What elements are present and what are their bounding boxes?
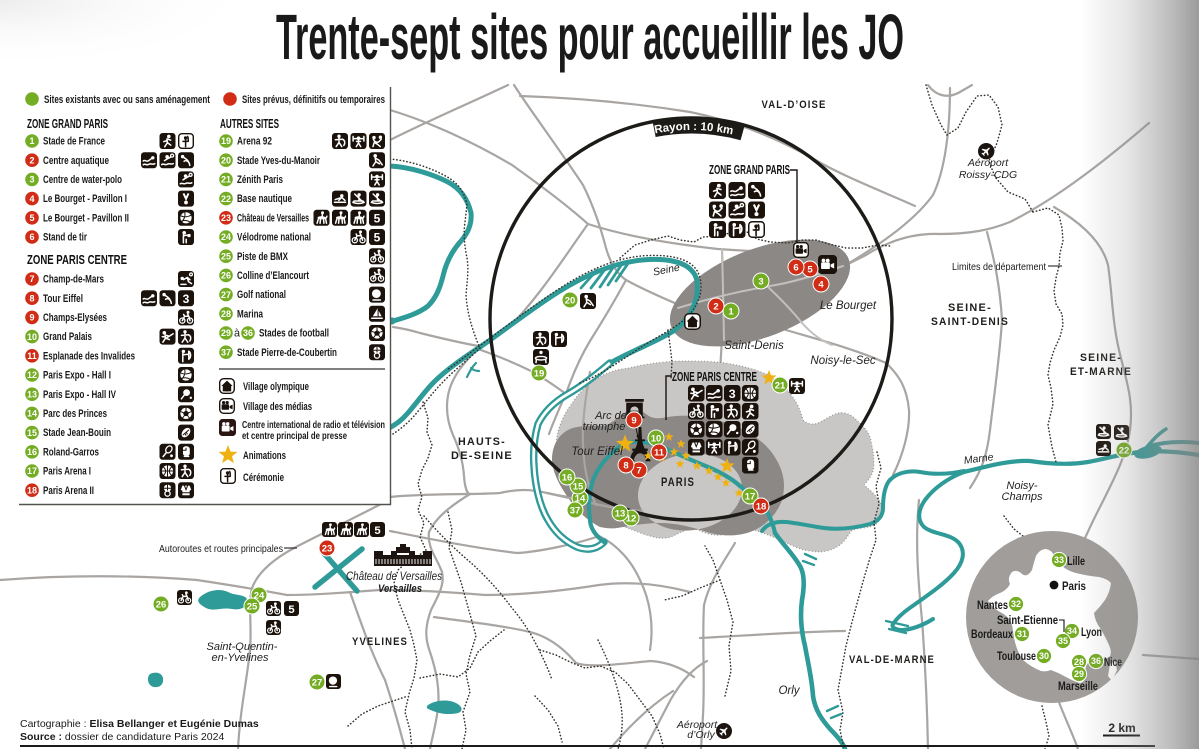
svg-text:9: 9 — [631, 415, 636, 426]
svg-text:Grand Palais: Grand Palais — [43, 331, 92, 343]
svg-text:Centre de water-polo: Centre de water-polo — [43, 174, 122, 186]
svg-text:Autoroutes et routes principal: Autoroutes et routes principales — [159, 543, 283, 555]
svg-text:Marina: Marina — [237, 308, 264, 320]
svg-text:Aéroport: Aéroport — [967, 157, 1009, 169]
svg-text:Stand de tir: Stand de tir — [43, 232, 88, 244]
svg-text:23: 23 — [221, 213, 231, 223]
svg-text:Stade Yves-du-Manoir: Stade Yves-du-Manoir — [237, 155, 321, 167]
svg-text:32: 32 — [1011, 599, 1021, 609]
svg-text:20: 20 — [565, 295, 576, 306]
svg-text:Village des médias: Village des médias — [243, 401, 312, 413]
svg-text:ZONE PARIS CENTRE: ZONE PARIS CENTRE — [27, 253, 127, 267]
svg-text:26: 26 — [221, 271, 231, 281]
svg-text:28: 28 — [221, 309, 231, 319]
svg-text:14: 14 — [27, 409, 37, 419]
svg-text:12: 12 — [27, 370, 37, 380]
svg-text:Roland-Garros: Roland-Garros — [43, 446, 99, 458]
svg-text:Centre international de radio: Centre international de radio et télévis… — [242, 420, 385, 431]
svg-text:22: 22 — [221, 194, 231, 204]
svg-text:36: 36 — [243, 328, 253, 338]
svg-text:17: 17 — [27, 466, 37, 476]
svg-text:2: 2 — [29, 155, 34, 165]
svg-text:DE-SEINE: DE-SEINE — [451, 450, 513, 462]
svg-text:10: 10 — [651, 433, 662, 444]
svg-text:5: 5 — [288, 604, 294, 616]
svg-text:Cérémonie: Cérémonie — [243, 472, 284, 484]
svg-text:30: 30 — [1039, 651, 1049, 661]
svg-text:4: 4 — [818, 279, 824, 290]
svg-text:35: 35 — [1058, 636, 1068, 646]
svg-text:Versailles: Versailles — [378, 583, 422, 595]
svg-text:27: 27 — [221, 290, 231, 300]
svg-text:Paris Arena I: Paris Arena I — [43, 466, 91, 478]
svg-text:HAUTS-: HAUTS- — [458, 436, 506, 448]
svg-text:23: 23 — [322, 543, 333, 554]
svg-text:33: 33 — [1054, 555, 1064, 565]
svg-text:5: 5 — [374, 525, 380, 537]
svg-text:Le Bourget: Le Bourget — [820, 300, 877, 312]
svg-text:triomphe: triomphe — [583, 421, 626, 433]
svg-text:1: 1 — [728, 306, 734, 317]
svg-text:10: 10 — [27, 332, 37, 342]
svg-text:YVELINES: YVELINES — [352, 636, 408, 648]
svg-text:Paris Arena II: Paris Arena II — [43, 485, 94, 497]
svg-text:Esplanade des Invalides: Esplanade des Invalides — [43, 350, 135, 362]
svg-text:Stade Pierre-de-Coubertin: Stade Pierre-de-Coubertin — [237, 347, 337, 359]
svg-text:37: 37 — [570, 505, 581, 516]
svg-text:29: 29 — [221, 328, 231, 338]
svg-text:Zénith Paris: Zénith Paris — [237, 174, 283, 186]
svg-text:15: 15 — [573, 481, 584, 492]
svg-text:SEINE-: SEINE- — [948, 302, 992, 314]
svg-text:Nantes: Nantes — [977, 600, 1008, 612]
svg-text:Paris Expo - Hall I: Paris Expo - Hall I — [43, 370, 111, 382]
svg-text:5: 5 — [374, 211, 381, 225]
svg-text:16: 16 — [27, 447, 37, 457]
svg-text:15: 15 — [27, 428, 37, 438]
svg-text:25: 25 — [247, 601, 258, 612]
svg-text:Bordeaux: Bordeaux — [971, 629, 1013, 641]
svg-text:Stade Jean-Bouin: Stade Jean-Bouin — [43, 427, 111, 439]
svg-text:6: 6 — [793, 262, 798, 273]
svg-text:Piste de BMX: Piste de BMX — [237, 251, 289, 263]
svg-text:Saint-Denis: Saint-Denis — [724, 340, 784, 352]
svg-text:Animations: Animations — [243, 450, 286, 462]
svg-text:19: 19 — [221, 136, 231, 146]
svg-text:Stade de France: Stade de France — [43, 136, 105, 148]
svg-text:8: 8 — [29, 293, 34, 303]
svg-text:4: 4 — [29, 194, 34, 204]
svg-text:13: 13 — [615, 508, 626, 519]
svg-text:37: 37 — [221, 347, 231, 357]
svg-text:20: 20 — [221, 155, 231, 165]
svg-text:27: 27 — [312, 677, 323, 688]
svg-text:d’Orly: d’Orly — [687, 729, 715, 741]
svg-text:Source : dossier de candidatur: Source : dossier de candidature Paris 20… — [20, 731, 224, 743]
svg-text:Champ-de-Mars: Champ-de-Mars — [43, 274, 104, 286]
svg-text:Château de Versailles: Château de Versailles — [346, 571, 442, 583]
svg-text:3: 3 — [758, 276, 763, 287]
svg-text:3: 3 — [183, 292, 190, 306]
svg-text:6: 6 — [29, 232, 34, 242]
svg-text:SAINT-DENIS: SAINT-DENIS — [931, 316, 1009, 328]
svg-text:31: 31 — [1017, 629, 1027, 639]
svg-text:Tour Eiffel: Tour Eiffel — [571, 446, 623, 458]
svg-text:7: 7 — [29, 274, 34, 284]
svg-text:Tour Eiffel: Tour Eiffel — [43, 293, 83, 305]
svg-text:34: 34 — [1067, 626, 1077, 636]
svg-text:13: 13 — [27, 389, 37, 399]
svg-text:Cartographie : Elisa Bellanger: Cartographie : Elisa Bellanger et Eugéni… — [20, 718, 259, 730]
svg-text:Stades de football: Stades de football — [259, 328, 329, 340]
svg-text:2: 2 — [713, 301, 718, 312]
svg-text:VAL-DE-MARNE: VAL-DE-MARNE — [849, 654, 935, 666]
svg-text:Paris Expo - Hall IV: Paris Expo - Hall IV — [43, 389, 117, 401]
svg-text:5: 5 — [807, 264, 813, 275]
svg-text:18: 18 — [756, 501, 767, 512]
svg-text:26: 26 — [156, 599, 167, 610]
svg-text:Golf national: Golf national — [237, 289, 286, 301]
svg-text:Centre aquatique: Centre aquatique — [43, 155, 109, 167]
svg-text:5: 5 — [374, 231, 381, 245]
svg-text:Base nautique: Base nautique — [237, 193, 292, 205]
svg-text:Saint-Etienne: Saint-Etienne — [997, 615, 1058, 627]
svg-text:Toulouse: Toulouse — [997, 651, 1036, 663]
svg-text:25: 25 — [221, 251, 231, 261]
svg-text:Orly: Orly — [778, 685, 800, 697]
svg-text:3: 3 — [729, 387, 736, 401]
svg-text:AUTRES SITES: AUTRES SITES — [220, 117, 279, 131]
svg-text:Château de Versailles: Château de Versailles — [237, 212, 309, 224]
svg-text:ZONE PARIS CENTRE: ZONE PARIS CENTRE — [672, 370, 757, 384]
svg-text:21: 21 — [221, 175, 231, 185]
svg-text:ZONE GRAND PARIS: ZONE GRAND PARIS — [709, 163, 790, 177]
svg-text:Arena 92: Arena 92 — [237, 136, 272, 148]
svg-text:Colline d’Elancourt: Colline d’Elancourt — [237, 270, 309, 282]
svg-text:en-Yvelines: en-Yvelines — [211, 652, 269, 664]
svg-text:Sites prévus, définitifs ou te: Sites prévus, définitifs ou temporaires — [242, 94, 385, 106]
svg-text:Trente-sept sites pour accueil: Trente-sept sites pour accueillir les JO — [276, 1, 904, 73]
svg-text:ZONE GRAND PARIS: ZONE GRAND PARIS — [27, 117, 108, 131]
svg-text:17: 17 — [745, 491, 756, 502]
svg-text:9: 9 — [29, 313, 34, 323]
svg-text:Vélodrome national: Vélodrome national — [237, 232, 311, 244]
svg-text:21: 21 — [775, 380, 786, 391]
svg-text:Village olympique: Village olympique — [243, 381, 309, 393]
svg-text:VAL-D’OISE: VAL-D’OISE — [762, 99, 827, 111]
svg-text:PARIS: PARIS — [661, 477, 695, 489]
svg-text:24: 24 — [221, 232, 231, 242]
svg-text:18: 18 — [27, 485, 37, 495]
svg-text:1: 1 — [29, 136, 34, 146]
svg-text:Le Bourget - Pavillon II: Le Bourget - Pavillon II — [43, 212, 129, 224]
svg-text:Champs-Elysées: Champs-Elysées — [43, 312, 107, 324]
svg-text:Noisy-le-Sec: Noisy-le-Sec — [810, 355, 875, 367]
svg-text:Roissy-CDG: Roissy-CDG — [959, 169, 1017, 181]
svg-text:11: 11 — [27, 351, 37, 361]
svg-text:Champs: Champs — [1002, 491, 1043, 503]
svg-text:8: 8 — [623, 460, 628, 471]
svg-text:Parc des Princes: Parc des Princes — [43, 408, 107, 420]
svg-text:3: 3 — [29, 175, 34, 185]
svg-text:à: à — [234, 328, 240, 340]
svg-text:5: 5 — [29, 213, 34, 223]
svg-text:et centre principal de presse: et centre principal de presse — [242, 431, 347, 442]
svg-text:Sites existants avec ou sans a: Sites existants avec ou sans aménagement — [44, 94, 210, 106]
svg-text:Le Bourget - Pavillon I: Le Bourget - Pavillon I — [43, 193, 127, 205]
svg-text:11: 11 — [654, 447, 665, 458]
svg-text:Limites de département: Limites de département — [952, 261, 1046, 273]
svg-text:16: 16 — [562, 472, 573, 483]
svg-text:7: 7 — [636, 465, 641, 476]
svg-text:19: 19 — [534, 368, 545, 379]
